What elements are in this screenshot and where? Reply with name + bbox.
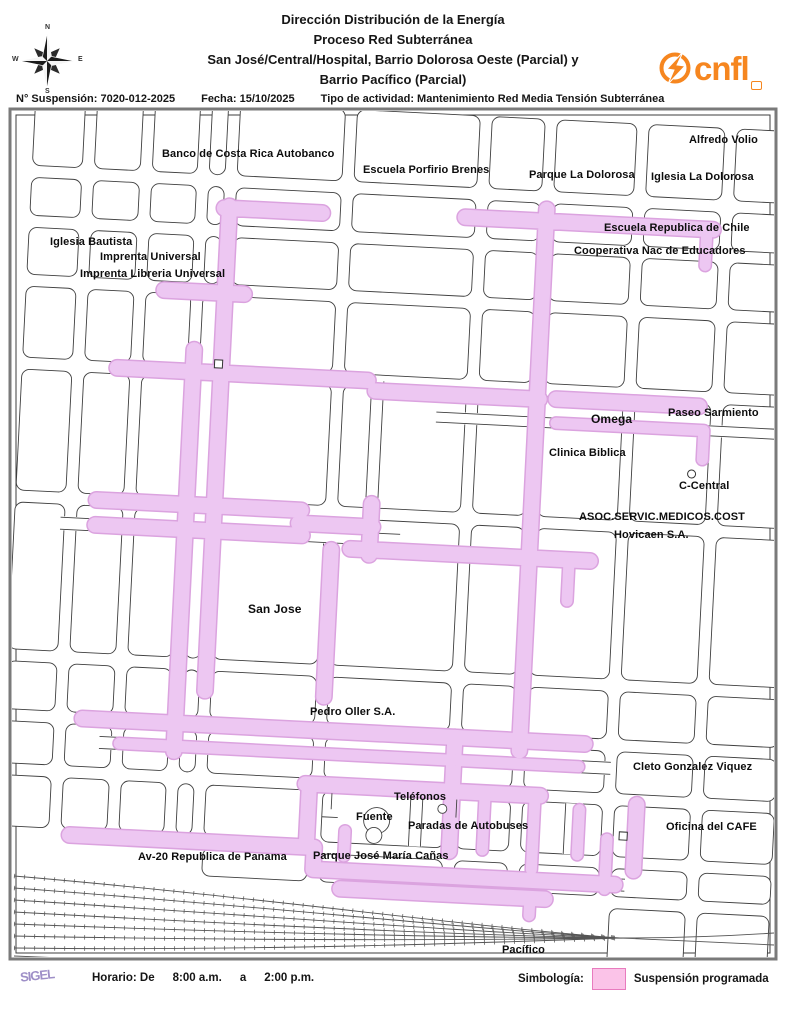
map-label-av20-republica-panama: Av-20 Republica de Panama [138,851,287,863]
schedule-to-time: 2:00 p.m. [264,972,314,984]
map-label-c-central: C-Central [679,480,729,492]
schedule-row: Horario: De 8:00 a.m. a 2:00 p.m. [92,972,314,984]
schedule-a-word: a [240,972,246,984]
map-label-parque-jose-maria-canas: Parque José María Cañas [313,850,449,862]
map-label-alfredo-volio: Alfredo Volio [689,134,758,146]
map-label-imprenta-libreria: Imprenta Libreria Universal [80,268,225,280]
map-label-iglesia-la-dolorosa: Iglesia La Dolorosa [651,171,754,183]
map-label-escuela-porfirio-brenes: Escuela Porfirio Brenes [363,164,489,176]
map-label-omega: Omega [591,412,632,426]
page: Dirección Distribución de la Energía Pro… [0,0,786,1024]
map-label-pacifico: Pacífico [502,944,545,956]
legend-suspension-label: Suspensión programada [634,973,769,985]
map-label-san-jose: San Jose [248,602,302,616]
map-label-escuela-republica-chile: Escuela Republica de Chile [604,222,750,234]
legend-title: Simbología: [518,973,584,985]
c-central-marker [687,470,695,478]
map-label-asoc-servic-medicos: ASOC.SERVIC.MEDICOS.COST [579,511,745,523]
map-label-banco-costa-rica: Banco de Costa Rica Autobanco [162,148,334,160]
map-label-cooperativa-educadores: Cooperativa Nac de Educadores [574,245,746,257]
map-label-telefonos: Teléfonos [394,791,446,803]
map-label-iglesia-bautista: Iglesia Bautista [50,236,132,248]
legend-row: Simbología: Suspensión programada [518,968,769,990]
schedule-from-time: 8:00 a.m. [173,972,222,984]
map-label-pedro-oller: Pedro Oller S.A. [310,706,395,718]
map-label-paradas-autobuses: Paradas de Autobuses [408,820,528,832]
legend-suspension-swatch [592,968,626,990]
schedule-label: Horario: De [92,972,155,984]
map-label-fuente: Fuente [356,811,393,823]
map-label-clinica-biblica: Clinica Biblica [549,447,626,459]
map-label-paseo-sarmiento: Paseo Sarmiento [668,407,759,419]
map-label-hovicaen: Hovicaen S.A. [614,529,689,541]
map-label-oficina-del-cafe: Oficina del CAFE [666,821,757,833]
map-label-imprenta-universal: Imprenta Universal [100,251,201,263]
map-label-cleto-gonzalez: Cleto Gonzalez Viquez [633,761,752,773]
map-label-parque-la-dolorosa: Parque La Dolorosa [529,169,635,181]
